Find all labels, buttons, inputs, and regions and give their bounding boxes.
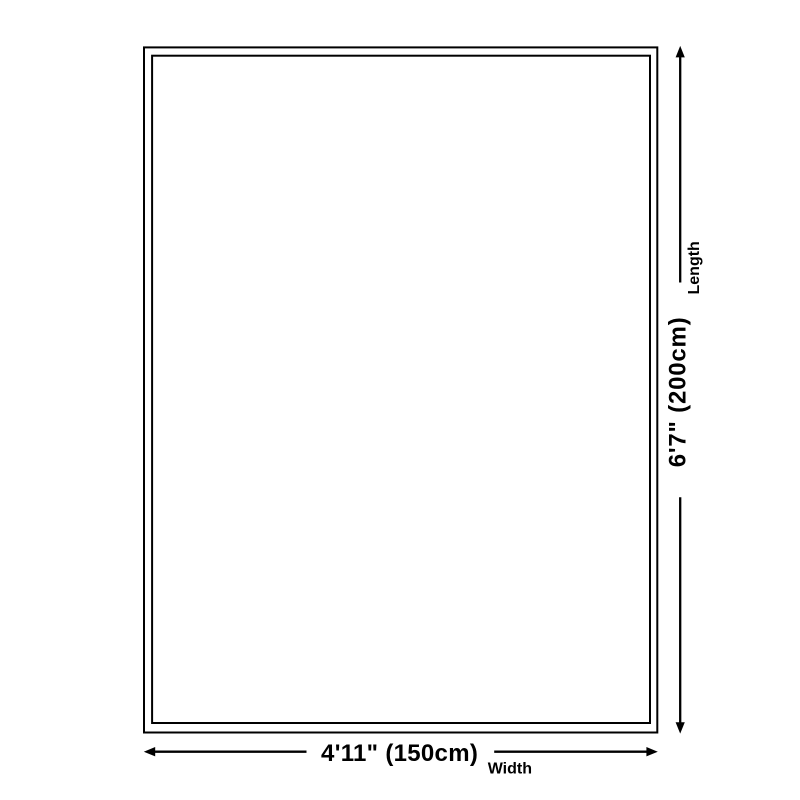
svg-text:Length: Length (686, 241, 703, 294)
svg-text:Width: Width (488, 761, 532, 778)
svg-text:6'7" (200cm): 6'7" (200cm) (665, 317, 692, 468)
svg-text:4'11" (150cm): 4'11" (150cm) (321, 740, 478, 767)
